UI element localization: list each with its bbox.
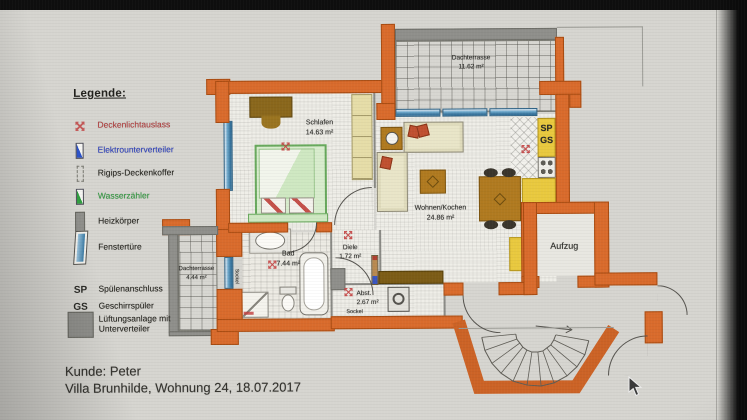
legend-icon-cell (62, 189, 98, 205)
title-block: Kunde: Peter Villa Brunhilde, Wohnung 24… (65, 362, 301, 397)
room-label-dachterrasse-top: Dachterrasse11.62 m² (401, 53, 541, 73)
legend-label: Spülenanschluss (98, 284, 162, 294)
wall (228, 223, 288, 233)
electrical-subpanel-icon (76, 143, 84, 159)
room-label-schlafen: Schlafen14.63 m² (284, 118, 354, 139)
legend-label: Deckenlichtauslass (97, 120, 170, 130)
dining-chair (502, 220, 516, 229)
radiator-icon (75, 212, 85, 232)
bed-footboard (248, 213, 328, 222)
neighbor-outline-v (642, 26, 643, 86)
room-label-wohnen: Wohnen/Kochen24.86 m² (393, 203, 488, 224)
ceiling-light-symbol (522, 145, 530, 153)
terrace-top-floor (395, 40, 557, 113)
toilet-bowl (282, 294, 295, 311)
room-label-aufzug: Aufzug (534, 240, 594, 253)
neighbor-outline-h (557, 26, 643, 28)
legend-label: Rigips-Deckenkoffer (98, 168, 174, 178)
legend-icon-cell (62, 166, 98, 182)
shower-red-mark (244, 312, 254, 315)
legend-item-water-meter: Wasserzähler (62, 185, 227, 208)
customer-line: Kunde: Peter (65, 362, 301, 380)
sofa-horizontal (403, 121, 463, 152)
table-mark (426, 175, 439, 188)
legend-label: Fenstertüre (98, 243, 142, 253)
drywall-ceiling-box-icon (76, 166, 83, 182)
legend-item-electrical-subpanel: Elektrounterverteiler (62, 139, 227, 162)
bed-pillow (261, 198, 286, 214)
wall (376, 103, 395, 120)
room-label-bad: Bad7.44 m² (258, 249, 318, 270)
legend-label: Lüftungsanlage mitUnterverteiler (99, 314, 171, 334)
kitchen-counter-lower (522, 178, 556, 204)
sofa-pillow (416, 124, 430, 138)
ceiling-light-symbol (282, 143, 290, 151)
door-arc-corridor (657, 285, 687, 315)
legend-icon-cell (62, 231, 98, 265)
screen-photo: Dachterrasse11.62 m² Schlafen14.63 m² Wo… (0, 0, 747, 420)
sideboard (378, 271, 443, 284)
room-label-diele: Diele1.72 m² (322, 243, 378, 262)
window-wohnen-2 (442, 108, 487, 116)
legend-label: Geschirrspüler (99, 301, 154, 311)
dining-chair (484, 168, 498, 177)
legend-label: Heizkörper (98, 217, 139, 227)
ceiling-light-symbol (344, 231, 352, 239)
legend-label: Wasserzähler (98, 191, 150, 201)
legend-item-ceiling-light-outlet: Deckenlichtauslass (61, 114, 226, 137)
room-label-abst: Abst.2.67 m² (354, 289, 406, 308)
legend-abbrev-cell: SP (62, 284, 98, 295)
sp-abbreviation: SP (74, 284, 87, 295)
wall (555, 37, 564, 82)
wall (555, 94, 570, 205)
project-line: Villa Brunhilde, Wohnung 24, 18.07.2017 (65, 379, 301, 397)
legend-item-window-door: Fenstertüre (62, 236, 227, 259)
legend-icon-cell (62, 212, 98, 232)
legend: Legende: DeckenlichtauslassElektrounterv… (61, 87, 228, 358)
window-door-icon (73, 231, 88, 266)
sockel-label-bottom: Sockel (341, 309, 369, 317)
sofa-pillow (380, 156, 393, 170)
side-table (380, 127, 402, 150)
wall (217, 80, 382, 94)
dining-chair (502, 168, 516, 177)
legend-icon-cell (62, 143, 98, 159)
side-table-bowl (386, 132, 399, 145)
kitchen-gs-label: GS (538, 134, 556, 147)
coffee-table (420, 170, 446, 194)
wall (217, 318, 335, 332)
wall (316, 222, 332, 232)
sockel-label-left: Sockel (232, 259, 239, 295)
ventilation-unit-icon (68, 312, 94, 338)
ceiling-light-symbol (344, 288, 352, 296)
bed-blanket (259, 148, 315, 198)
wall-gray-terrace-top (395, 28, 557, 41)
bed-pillow (289, 197, 314, 213)
legend-item-ventilation-unit: Lüftungsanlage mitUnterverteiler (63, 313, 228, 336)
legend-label: Elektrounterverteiler (98, 145, 174, 155)
gs-abbreviation: GS (73, 301, 88, 312)
ceiling-light-outlet-icon (75, 121, 84, 130)
legend-item-drywall-ceiling-box: Rigips-Deckenkoffer (62, 162, 227, 185)
sink (255, 232, 285, 250)
water-meter-icon (76, 189, 84, 205)
toilet-tank (279, 286, 296, 294)
screen-top-bezel (0, 0, 747, 10)
desk (249, 96, 292, 117)
table-mark (494, 192, 507, 205)
legend-icon-cell (63, 312, 99, 338)
mouse-cursor (628, 376, 644, 397)
stove (538, 157, 556, 178)
legend-abbrev-cell: GS (63, 301, 99, 312)
screen-right-bezel (717, 0, 747, 420)
window-wohnen-1 (395, 109, 440, 117)
legend-item-radiator: Heizkörper (62, 210, 227, 233)
legend-icon-cell (61, 121, 97, 130)
cad-canvas: Dachterrasse11.62 m² Schlafen14.63 m² Wo… (0, 0, 747, 420)
window-wohnen-3 (489, 108, 537, 116)
legend-title: Legende: (73, 88, 126, 100)
wall (569, 94, 581, 108)
desk-chair (261, 116, 280, 129)
